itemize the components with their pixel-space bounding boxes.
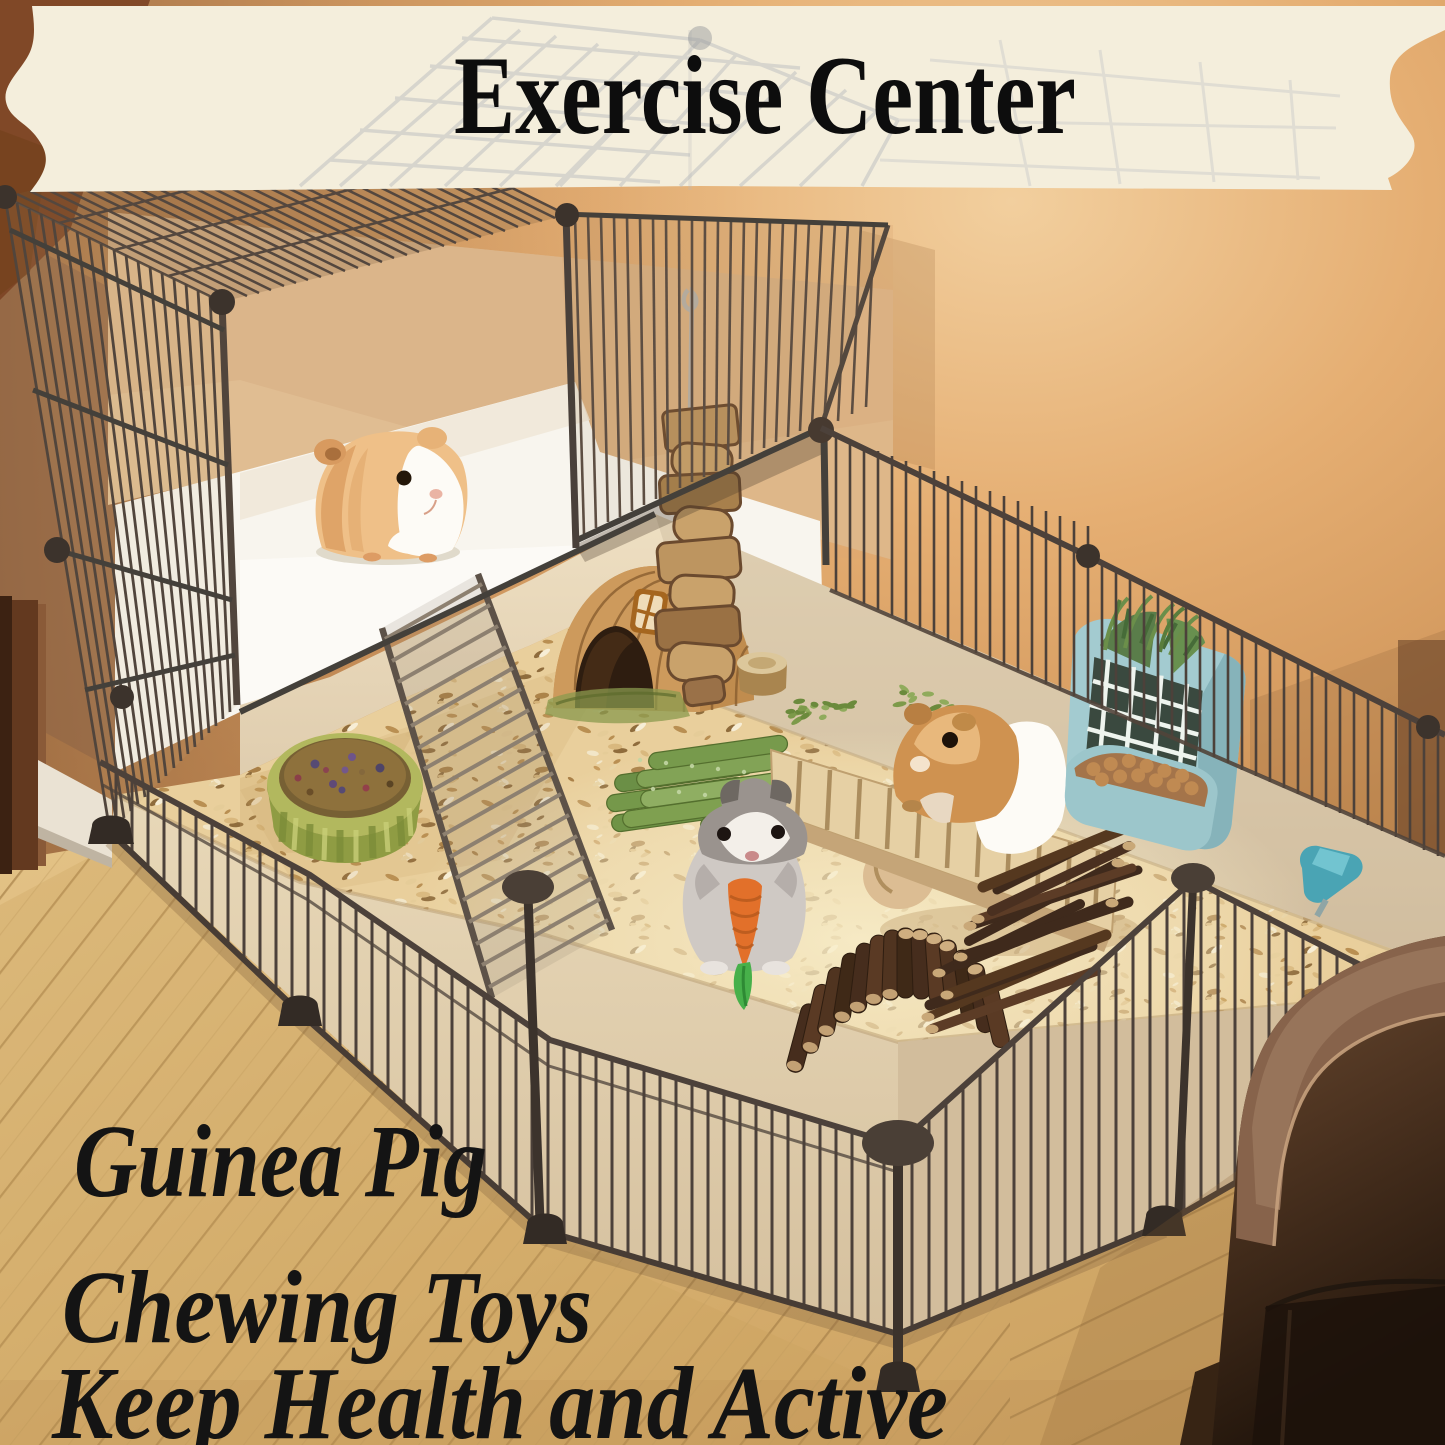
svg-text:Exercise Center: Exercise Center	[454, 34, 1076, 158]
svg-text:Guinea Pig: Guinea Pig	[74, 1104, 487, 1219]
svg-text:Keep Health and Active: Keep Health and Active	[51, 1346, 948, 1445]
